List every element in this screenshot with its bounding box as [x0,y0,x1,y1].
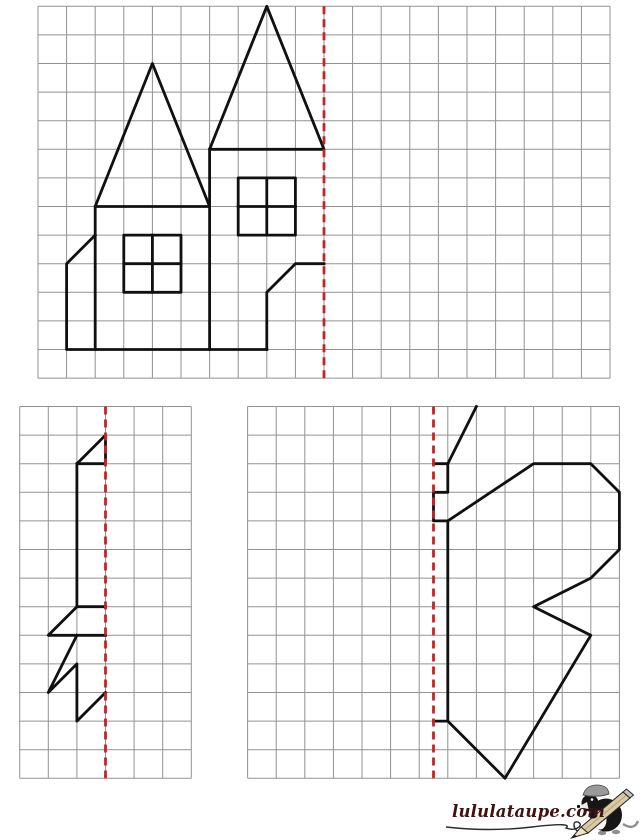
worksheet-canvas [0,0,640,840]
butterfly-half-drawing [434,407,620,779]
site-logo: lululataupe.com [440,782,640,840]
pencil-scribble-line [446,822,581,833]
butterfly-figure-segment [434,464,448,721]
grid-fir-tree [20,407,192,779]
mole-tail [623,821,638,827]
mole-eye [591,798,594,801]
grid-house [38,6,610,378]
mole-foot [612,830,620,834]
grid-butterfly [248,407,620,779]
fir-tree-figure-segment [77,435,106,464]
site-name: lululataupe.com [452,802,605,821]
